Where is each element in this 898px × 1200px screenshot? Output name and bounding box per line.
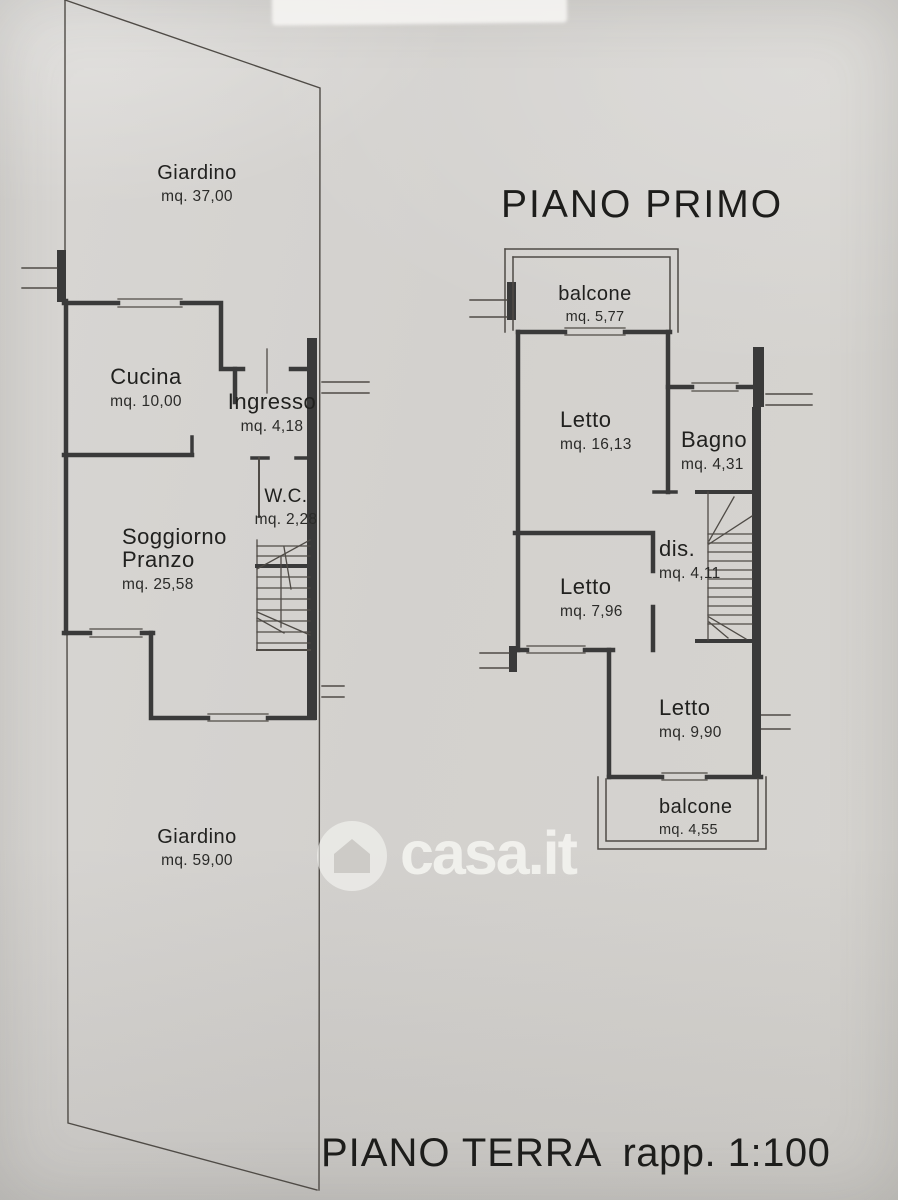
first-floor-title: PIANO PRIMO (501, 185, 783, 224)
room-label-balcone-bottom: balcone mq. 4,55 (659, 797, 733, 838)
room-name: Letto (560, 576, 623, 598)
room-area: mq. 4,55 (659, 823, 733, 838)
room-name: Giardino (157, 163, 237, 183)
room-area: mq. 9,90 (659, 725, 722, 741)
house-icon (331, 836, 373, 876)
room-label-wc: W.C. mq. 2,28 (255, 487, 318, 528)
room-area: mq. 25,58 (122, 577, 227, 593)
scanned-floorplan-page: Giardino mq. 37,00 Cucina mq. 10,00 Ingr… (0, 0, 898, 1200)
watermark-brand: casa.it (400, 818, 576, 894)
room-name: Letto (560, 409, 632, 431)
room-name: Cucina (110, 366, 182, 388)
room-name: dis. (659, 538, 721, 560)
room-name: balcone (558, 284, 632, 304)
room-name-2: Pranzo (122, 548, 227, 571)
windows (90, 299, 268, 721)
room-area: mq. 59,00 (157, 853, 237, 869)
room-area: mq. 4,18 (228, 419, 316, 435)
room-area: mq. 7,96 (560, 604, 623, 620)
room-name: Ingresso (228, 391, 316, 413)
room-area: mq. 2,28 (255, 512, 318, 528)
room-label-cucina: Cucina mq. 10,00 (110, 366, 182, 410)
room-label-giardino-top: Giardino mq. 37,00 (157, 163, 237, 205)
watermark-circle (317, 821, 387, 891)
room-area: mq. 37,00 (157, 189, 237, 205)
first-floor-plan (470, 249, 812, 849)
room-name: Giardino (157, 827, 237, 847)
room-label-giardino-bottom: Giardino mq. 59,00 (157, 827, 237, 869)
floorplan-drawing (0, 0, 898, 1200)
room-label-letto-3: Letto mq. 9,90 (659, 697, 722, 741)
room-name: Soggiorno (122, 525, 227, 548)
casa-it-watermark: casa.it (317, 818, 576, 894)
ground-staircase (257, 540, 310, 650)
right-exterior-wall (752, 407, 761, 777)
ground-floor-title: PIANO TERRArapp. 1:100 (321, 1133, 830, 1173)
room-area: mq. 4,31 (681, 457, 747, 473)
room-label-ingresso: Ingresso mq. 4,18 (228, 391, 316, 435)
room-label-balcone-top: balcone mq. 5,77 (558, 284, 632, 325)
room-name: W.C. (255, 487, 318, 506)
room-label-dis: dis. mq. 4,11 (659, 538, 721, 582)
room-name: balcone (659, 797, 733, 817)
scale-text: rapp. 1:100 (622, 1131, 830, 1175)
room-label-soggiorno: Soggiorno Pranzo mq. 25,58 (122, 525, 227, 593)
floor-title-text: PIANO TERRA (321, 1131, 602, 1175)
room-area: mq. 5,77 (558, 310, 632, 325)
room-area: mq. 10,00 (110, 394, 182, 410)
room-label-bagno: Bagno mq. 4,31 (681, 429, 747, 473)
first-floor-walls (515, 332, 761, 777)
room-name: Letto (659, 697, 722, 719)
right-party-wall-first (753, 347, 764, 407)
room-label-letto-2: Letto mq. 7,96 (560, 576, 623, 620)
room-area: mq. 4,11 (659, 566, 721, 582)
room-label-letto-1: Letto mq. 16,13 (560, 409, 632, 453)
room-name: Bagno (681, 429, 747, 451)
room-area: mq. 16,13 (560, 437, 632, 453)
